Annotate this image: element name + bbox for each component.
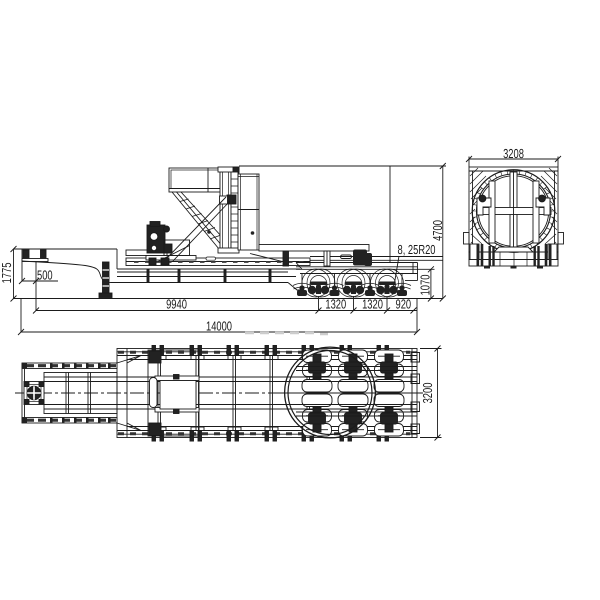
svg-text:1320: 1320	[325, 296, 346, 311]
svg-text:14000: 14000	[206, 319, 232, 334]
svg-text:920: 920	[395, 296, 411, 311]
svg-text:8, 25R20: 8, 25R20	[398, 242, 436, 257]
svg-text:500: 500	[37, 268, 53, 283]
svg-text:4700: 4700	[430, 220, 445, 241]
svg-text:1320: 1320	[362, 296, 383, 311]
svg-text:1070: 1070	[418, 275, 433, 296]
svg-text:1775: 1775	[0, 263, 14, 284]
svg-text:9940: 9940	[166, 297, 187, 312]
